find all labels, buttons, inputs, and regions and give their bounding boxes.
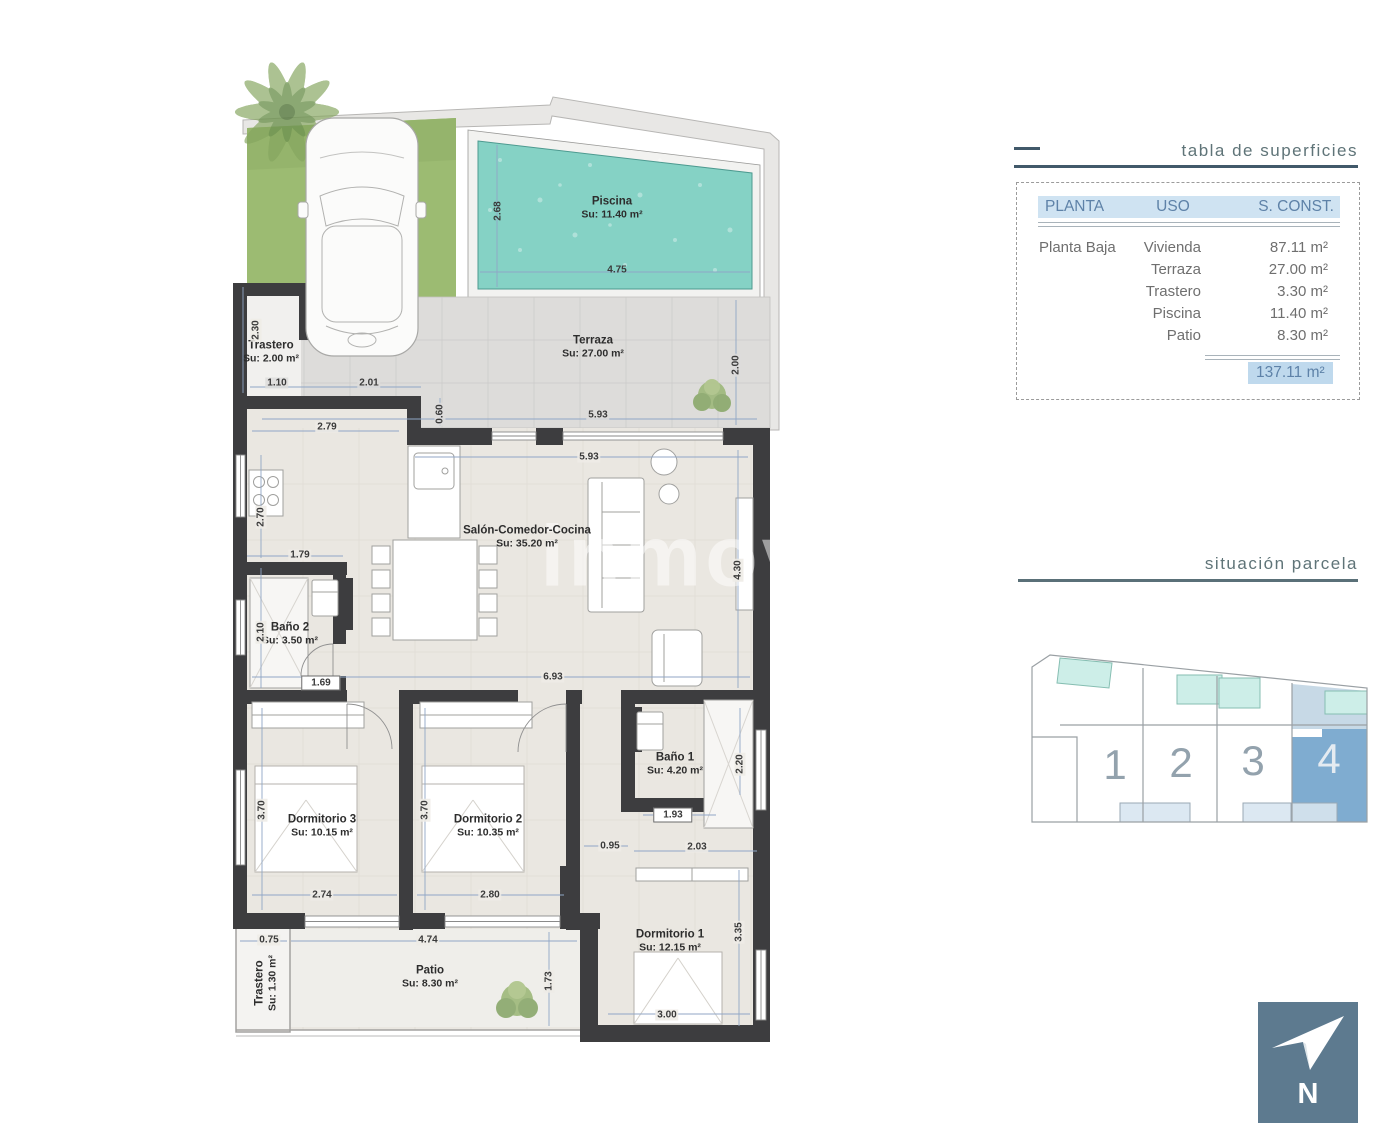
dimension-label: 0.75 <box>257 935 280 946</box>
unit-number-3: 3 <box>1241 737 1264 785</box>
room-label-trastero-bottom: Trastero Su: 1.30 m² <box>254 955 279 1011</box>
room-area: Su: 10.35 m² <box>454 827 522 839</box>
room-label-dormitorio1: Dormitorio 1 Su: 12.15 m² <box>636 929 704 954</box>
sup-cell: 87.11 m² <box>1201 239 1338 256</box>
room-name: Trastero <box>254 955 267 1011</box>
room-name: Baño 1 <box>647 752 703 765</box>
dimension-label: 2.70 <box>256 505 267 528</box>
table-row: Planta Baja Vivienda 87.11 m² <box>1039 237 1338 259</box>
uso-cell: Piscina <box>1131 305 1201 322</box>
dimension-label: 0.60 <box>435 402 446 425</box>
room-name: Terraza <box>562 335 624 348</box>
unit-number-2: 2 <box>1169 739 1192 787</box>
dimension-label: 2.03 <box>685 842 708 853</box>
surface-table-total-rule <box>1205 355 1340 360</box>
room-label-dormitorio3: Dormitorio 3 Su: 10.15 m² <box>288 814 356 839</box>
room-area: Su: 11.40 m² <box>581 209 642 221</box>
unit-number-4-highlighted: 4 <box>1317 735 1340 783</box>
room-area: Su: 10.15 m² <box>288 827 356 839</box>
room-label-bano2: Baño 2 Su: 3.50 m² <box>262 622 318 647</box>
tv-unit <box>736 498 753 610</box>
dimension-label: 2.74 <box>310 890 333 901</box>
header-sconst: S. CONST. <box>1258 198 1340 216</box>
surface-table-header: PLANTA USO S. CONST. <box>1038 196 1340 218</box>
unit-number-1: 1 <box>1103 741 1126 789</box>
dimension-label: 1.10 <box>265 378 288 389</box>
dimension-label: 3.00 <box>655 1010 678 1021</box>
dimension-label: 2.30 <box>251 318 262 341</box>
surface-table-title: tabla de superficies <box>1182 141 1358 161</box>
surface-table-total: 137.11 m² <box>1248 362 1333 384</box>
room-name: Salón-Comedor-Cocina <box>463 525 591 538</box>
surface-table-rows: Planta Baja Vivienda 87.11 m² Terraza 27… <box>1039 237 1338 346</box>
surface-table-rule <box>1014 165 1358 168</box>
dimension-label: 2.10 <box>256 620 267 643</box>
room-area: Su: 4.20 m² <box>647 765 703 777</box>
armchair <box>652 630 702 686</box>
room-label-salon: Salón-Comedor-Cocina Su: 35.20 m² <box>463 525 591 550</box>
dimension-label: 1.93 <box>653 808 692 823</box>
table-row: Terraza 27.00 m² <box>1039 259 1338 281</box>
room-name: Dormitorio 2 <box>454 814 522 827</box>
dimension-label: 4.75 <box>605 265 628 276</box>
uso-cell: Vivienda <box>1131 239 1201 256</box>
car <box>298 118 426 356</box>
room-name: Piscina <box>581 196 642 209</box>
room-label-trastero-top: Trastero Su: 2.00 m² <box>243 340 299 365</box>
north-indicator: N <box>1258 1002 1358 1123</box>
room-label-patio: Patio Su: 8.30 m² <box>402 965 458 990</box>
dimension-label: 3.70 <box>420 798 431 821</box>
sup-cell: 27.00 m² <box>1201 261 1338 278</box>
room-area: Su: 12.15 m² <box>636 942 704 954</box>
dimension-label: 2.01 <box>357 378 380 389</box>
room-label-dormitorio2: Dormitorio 2 Su: 10.35 m² <box>454 814 522 839</box>
dimension-label: 6.93 <box>541 672 564 683</box>
table-row: Trastero 3.30 m² <box>1039 281 1338 303</box>
floor-label: Planta Baja <box>1039 239 1131 256</box>
dimension-label: 0.95 <box>598 841 621 852</box>
dimension-label: 1.69 <box>301 676 340 691</box>
header-planta: PLANTA <box>1038 198 1104 216</box>
room-name: Dormitorio 3 <box>288 814 356 827</box>
room-area: Su: 3.50 m² <box>262 635 318 647</box>
room-label-terraza: Terraza Su: 27.00 m² <box>562 335 624 360</box>
north-label: N <box>1258 1078 1358 1111</box>
dimension-label: 2.20 <box>735 752 746 775</box>
room-label-bano1: Baño 1 Su: 4.20 m² <box>647 752 703 777</box>
dimension-label: 1.79 <box>288 550 311 561</box>
dimension-label: 3.35 <box>734 920 745 943</box>
dimension-label: 2.68 <box>493 199 504 222</box>
room-name: Baño 2 <box>262 622 318 635</box>
room-name: Dormitorio 1 <box>636 929 704 942</box>
dimension-label: 2.79 <box>315 422 338 433</box>
room-area: Su: 1.30 m² <box>267 955 279 1011</box>
dimension-label: 4.30 <box>733 558 744 581</box>
plot-location-title: situación parcela <box>1205 554 1358 574</box>
surface-table-header-rule <box>1038 222 1340 227</box>
dimension-label: 1.73 <box>544 969 555 992</box>
north-arrow-icon <box>1258 1002 1358 1077</box>
plot-location-rule <box>1018 579 1358 582</box>
table-row: Piscina 11.40 m² <box>1039 302 1338 324</box>
uso-cell: Terraza <box>1131 261 1201 278</box>
sup-cell: 11.40 m² <box>1201 305 1338 322</box>
uso-cell: Patio <box>1131 327 1201 344</box>
dimension-label: 5.93 <box>586 410 609 421</box>
room-area: Su: 8.30 m² <box>402 978 458 990</box>
sup-cell: 8.30 m² <box>1201 327 1338 344</box>
room-label-piscina: Piscina Su: 11.40 m² <box>581 196 642 221</box>
dimension-label: 2.00 <box>731 353 742 376</box>
uso-cell: Trastero <box>1131 283 1201 300</box>
room-area: Su: 35.20 m² <box>463 538 591 550</box>
title-tick <box>1014 147 1040 150</box>
dimension-label: 5.93 <box>577 452 600 463</box>
dimension-label: 2.80 <box>478 890 501 901</box>
table-row: Patio 8.30 m² <box>1039 324 1338 346</box>
dimension-label: 4.74 <box>416 935 439 946</box>
floor-plan-drawing <box>0 0 1400 1123</box>
room-name: Patio <box>402 965 458 978</box>
sup-cell: 3.30 m² <box>1201 283 1338 300</box>
room-area: Su: 27.00 m² <box>562 348 624 360</box>
header-uso: USO <box>1156 198 1190 216</box>
dimension-label: 3.70 <box>257 798 268 821</box>
room-area: Su: 2.00 m² <box>243 353 299 365</box>
